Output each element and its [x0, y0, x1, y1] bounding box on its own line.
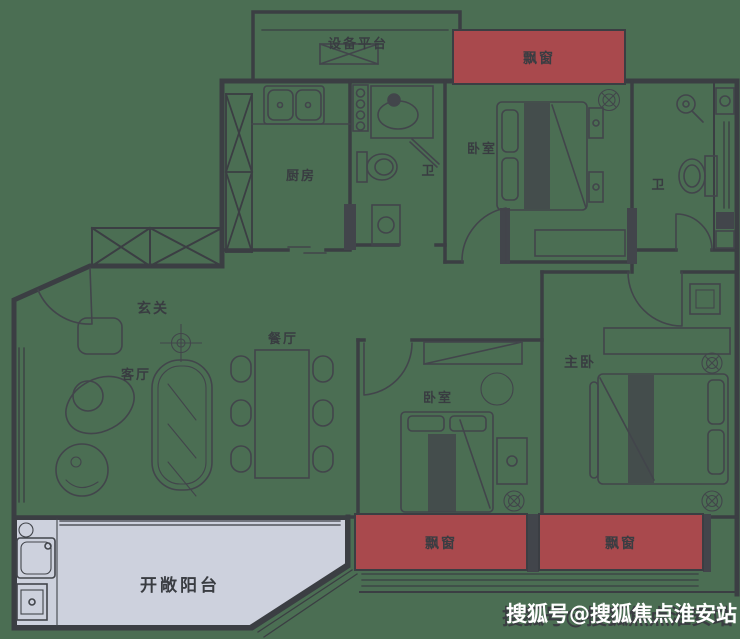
- dining-label: 餐厅: [267, 331, 298, 347]
- watermark: 搜狐号@搜狐焦点淮安站 搜狐号@搜狐焦点淮安站: [502, 602, 737, 629]
- faucet: [388, 94, 400, 106]
- watermark-text: 搜狐号@搜狐焦点淮安站: [506, 602, 737, 626]
- living-label: 客厅: [121, 367, 151, 383]
- bedroom-middle-label: 卧室: [423, 390, 453, 406]
- bay-window-top: 飘窗: [453, 30, 625, 84]
- kitchen-label: 厨房: [286, 168, 316, 184]
- balcony-label: 开敞阳台: [140, 575, 220, 596]
- bath1-label: 卫: [421, 164, 436, 179]
- foyer-label: 玄关: [137, 300, 169, 317]
- bay-window-bottom-left-label: 飘窗: [425, 535, 457, 552]
- bay-window-top-label: 飘窗: [523, 50, 555, 67]
- bay-window-bottom-right-label: 飘窗: [605, 535, 637, 552]
- bay-window-bottom-left: 飘窗: [355, 514, 527, 570]
- equipment-platform-label: 设备平台: [328, 36, 388, 52]
- bay-window-bottom-right: 飘窗: [539, 514, 703, 570]
- master-bedroom-label: 主卧: [564, 354, 596, 371]
- shelf: [716, 212, 734, 229]
- bath2-label: 卫: [651, 178, 666, 193]
- floor-plan: 飘窗 飘窗 飘窗 设备平台 厨房 卫 卧室 卫 玄关 餐厅 客厅 卧室 主卧 开…: [0, 0, 740, 639]
- bedroom-top-label: 卧室: [467, 141, 497, 157]
